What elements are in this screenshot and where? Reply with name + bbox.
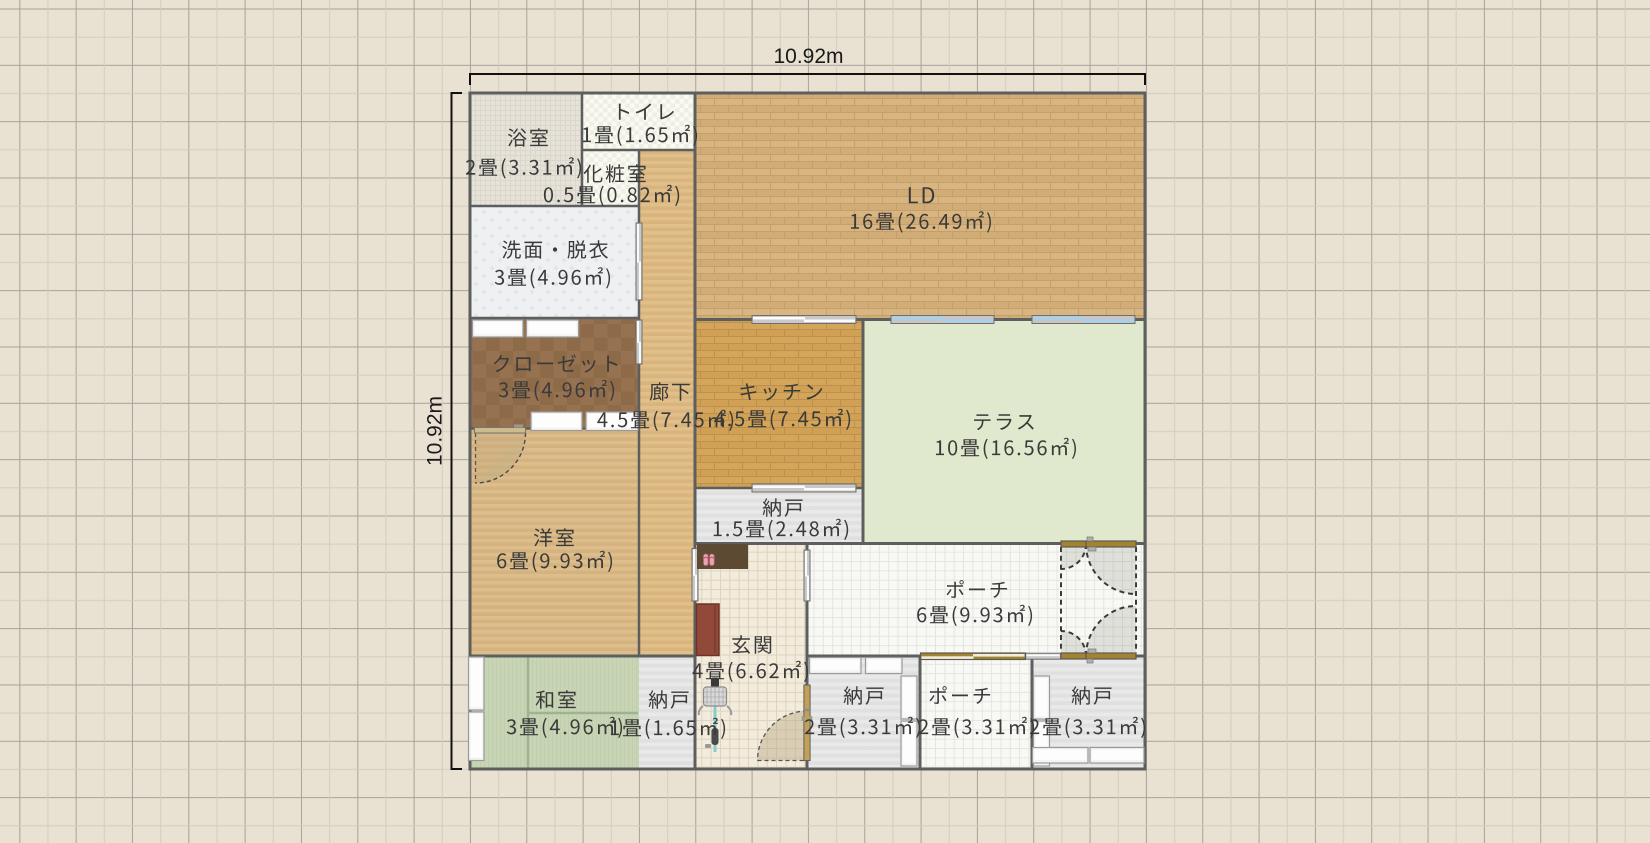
svg-text:10.92m: 10.92m xyxy=(424,396,447,466)
svg-text:10.92m: 10.92m xyxy=(773,45,843,68)
